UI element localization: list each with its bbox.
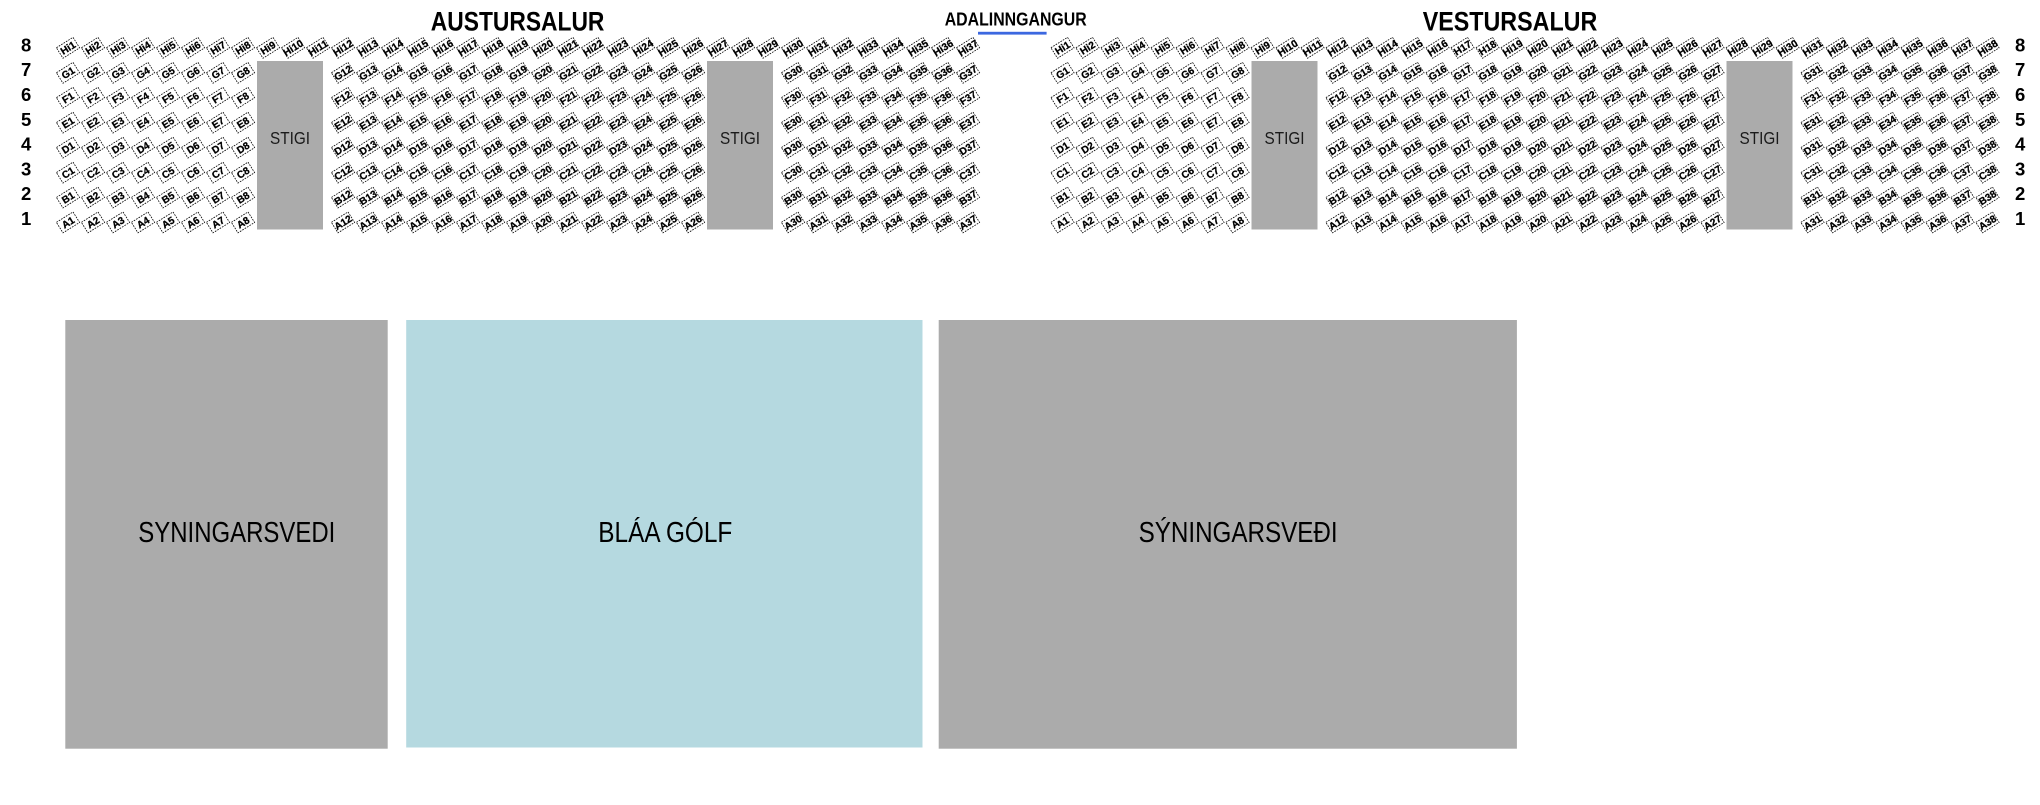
svg-text:4: 4 xyxy=(2015,134,2026,155)
svg-text:7: 7 xyxy=(2015,59,2025,80)
svg-text:3: 3 xyxy=(2015,158,2025,179)
svg-text:5: 5 xyxy=(21,109,31,130)
svg-text:STIGI: STIGI xyxy=(1740,128,1780,148)
svg-text:5: 5 xyxy=(2015,109,2025,130)
svg-text:BLÁA GÓLF: BLÁA GÓLF xyxy=(598,517,732,549)
svg-text:1: 1 xyxy=(21,208,31,229)
svg-text:8: 8 xyxy=(21,34,31,55)
svg-text:6: 6 xyxy=(21,84,31,105)
svg-text:2: 2 xyxy=(21,183,31,204)
svg-text:7: 7 xyxy=(21,59,31,80)
svg-text:3: 3 xyxy=(21,158,31,179)
svg-text:VESTURSALUR: VESTURSALUR xyxy=(1423,6,1598,36)
svg-text:SYNINGARSVEDI: SYNINGARSVEDI xyxy=(138,517,335,549)
svg-text:STIGI: STIGI xyxy=(1265,128,1305,148)
svg-text:STIGI: STIGI xyxy=(720,128,760,148)
svg-text:6: 6 xyxy=(2015,84,2025,105)
svg-text:8: 8 xyxy=(2015,34,2025,55)
svg-text:2: 2 xyxy=(2015,183,2025,204)
svg-text:4: 4 xyxy=(21,134,32,155)
svg-text:1: 1 xyxy=(2015,208,2025,229)
svg-text:STIGI: STIGI xyxy=(270,128,310,148)
svg-text:SÝNINGARSVEÐI: SÝNINGARSVEÐI xyxy=(1139,517,1338,549)
svg-text:ADALINNGANGUR: ADALINNGANGUR xyxy=(945,9,1087,30)
svg-text:AUSTURSALUR: AUSTURSALUR xyxy=(431,6,605,36)
